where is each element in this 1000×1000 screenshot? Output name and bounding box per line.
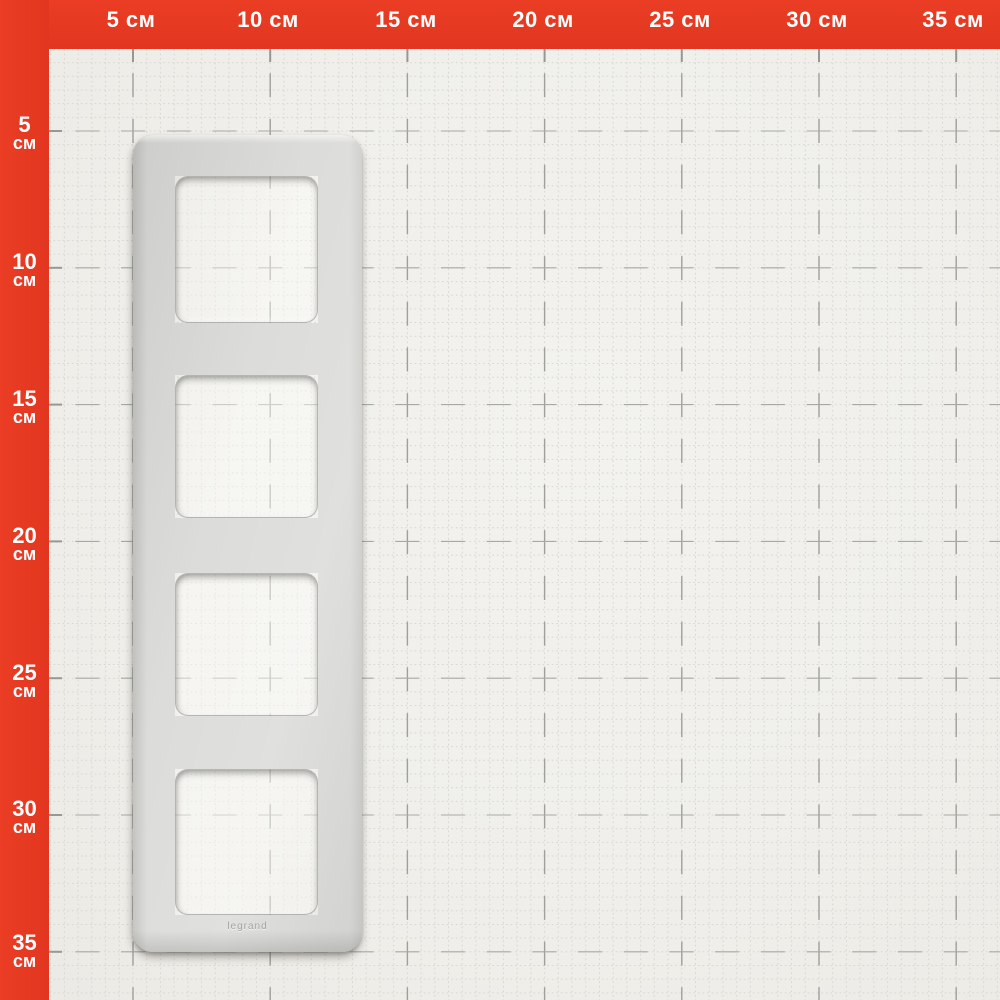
- frame-surface-divider: [133, 323, 362, 375]
- ruler-left-label: 5 см: [0, 115, 49, 153]
- ruler-left-label: 30 см: [0, 799, 49, 837]
- ruler-left-unit: см: [0, 952, 49, 971]
- ruler-top-label: 10 см: [237, 7, 299, 33]
- ruler-top-label: 15 см: [375, 7, 437, 33]
- ruler-left-label: 10 см: [0, 252, 49, 290]
- ruler-left-value: 10: [0, 252, 49, 271]
- frame-window-2: [175, 375, 318, 518]
- ruler-left-value: 5: [0, 115, 49, 134]
- ruler-left-label: 20 см: [0, 526, 49, 564]
- ruler-left-value: 25: [0, 663, 49, 682]
- product-frame: legrand: [133, 135, 362, 952]
- frame-edge-shade-left: [133, 135, 147, 952]
- frame-surface-divider: [133, 716, 362, 769]
- ruler-top-label: 30 см: [786, 7, 848, 33]
- ruler-left-label: 25 см: [0, 663, 49, 701]
- frame-window-4: [175, 769, 318, 915]
- ruler-left-value: 30: [0, 799, 49, 818]
- ruler-left-unit: см: [0, 271, 49, 290]
- ruler-top-label: 20 см: [512, 7, 574, 33]
- brand-logo: legrand: [133, 921, 362, 932]
- frame-edge-highlight-top: [133, 135, 362, 143]
- frame-edge-shade-right: [350, 135, 362, 952]
- ruler-left-label: 15 см: [0, 389, 49, 427]
- ruler-left-unit: см: [0, 682, 49, 701]
- ruler-top: 5 см 10 см 15 см 20 см 25 см 30 см 35 см: [0, 0, 1000, 49]
- ruler-left-unit: см: [0, 818, 49, 837]
- ruler-top-label: 25 см: [649, 7, 711, 33]
- ruler-left-unit: см: [0, 408, 49, 427]
- ruler-left-unit: см: [0, 545, 49, 564]
- frame-window-3: [175, 573, 318, 716]
- frame-window-1: [175, 176, 318, 323]
- ruler-left-value: 20: [0, 526, 49, 545]
- ruler-left-unit: см: [0, 134, 49, 153]
- ruler-left: 5 см 10 см 15 см 20 см 25 см 30 см 35 см: [0, 0, 49, 1000]
- ruler-top-label: 5 см: [107, 7, 156, 33]
- frame-edge-shade-bottom: [133, 930, 362, 952]
- product-photo: 5 см 10 см 15 см 20 см 25 см 30 см 35 см…: [0, 0, 1000, 1000]
- ruler-left-label: 35 см: [0, 933, 49, 971]
- frame-surface-divider: [133, 518, 362, 573]
- ruler-left-value: 15: [0, 389, 49, 408]
- ruler-top-label: 35 см: [922, 7, 984, 33]
- ruler-left-value: 35: [0, 933, 49, 952]
